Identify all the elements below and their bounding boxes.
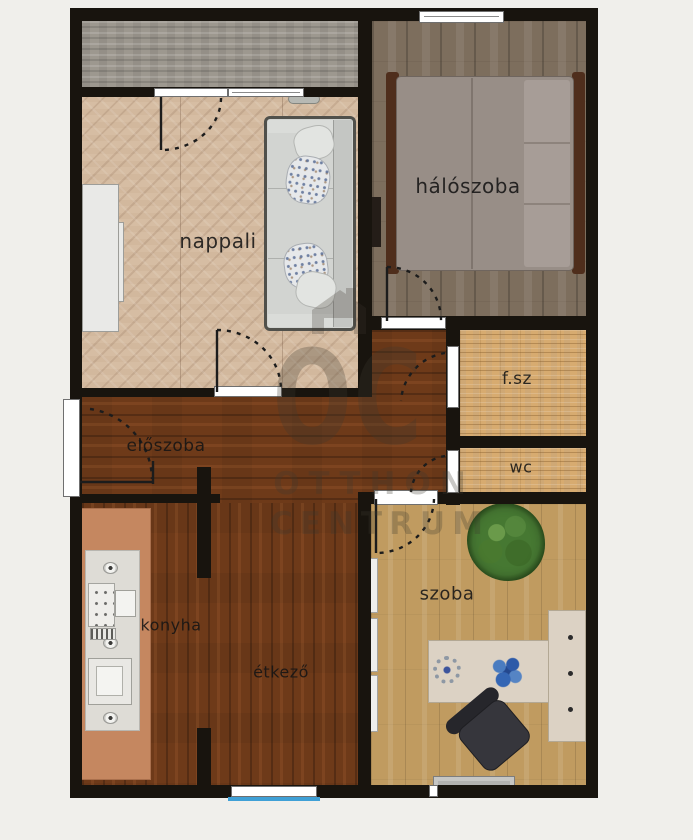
room-label-eloszoba: előszoba: [127, 436, 206, 456]
living-room-door-arc: [217, 330, 281, 390]
bedroom-door-arc: [387, 267, 441, 321]
watermark-line2: CENTRUM: [270, 506, 490, 542]
watermark-line1: OTTHON: [273, 466, 475, 502]
room-label-wc: wc: [510, 458, 533, 477]
room-label-nappali: nappali: [179, 229, 256, 253]
room-label-szoba: szoba: [420, 584, 475, 605]
balcony-door-arc: [161, 98, 221, 150]
entry-door-leaf: [80, 461, 153, 484]
room-label-haloszoba: hálószoba: [415, 174, 520, 198]
room-label-etkezo: étkező: [253, 663, 309, 682]
room-label-fsz: f.sz: [502, 369, 532, 389]
room-label-konyha: konyha: [140, 616, 201, 635]
floorplan-canvas: nappali hálószoba f.sz wc előszoba konyh…: [0, 0, 693, 840]
watermark-logo: OC: [272, 322, 423, 474]
